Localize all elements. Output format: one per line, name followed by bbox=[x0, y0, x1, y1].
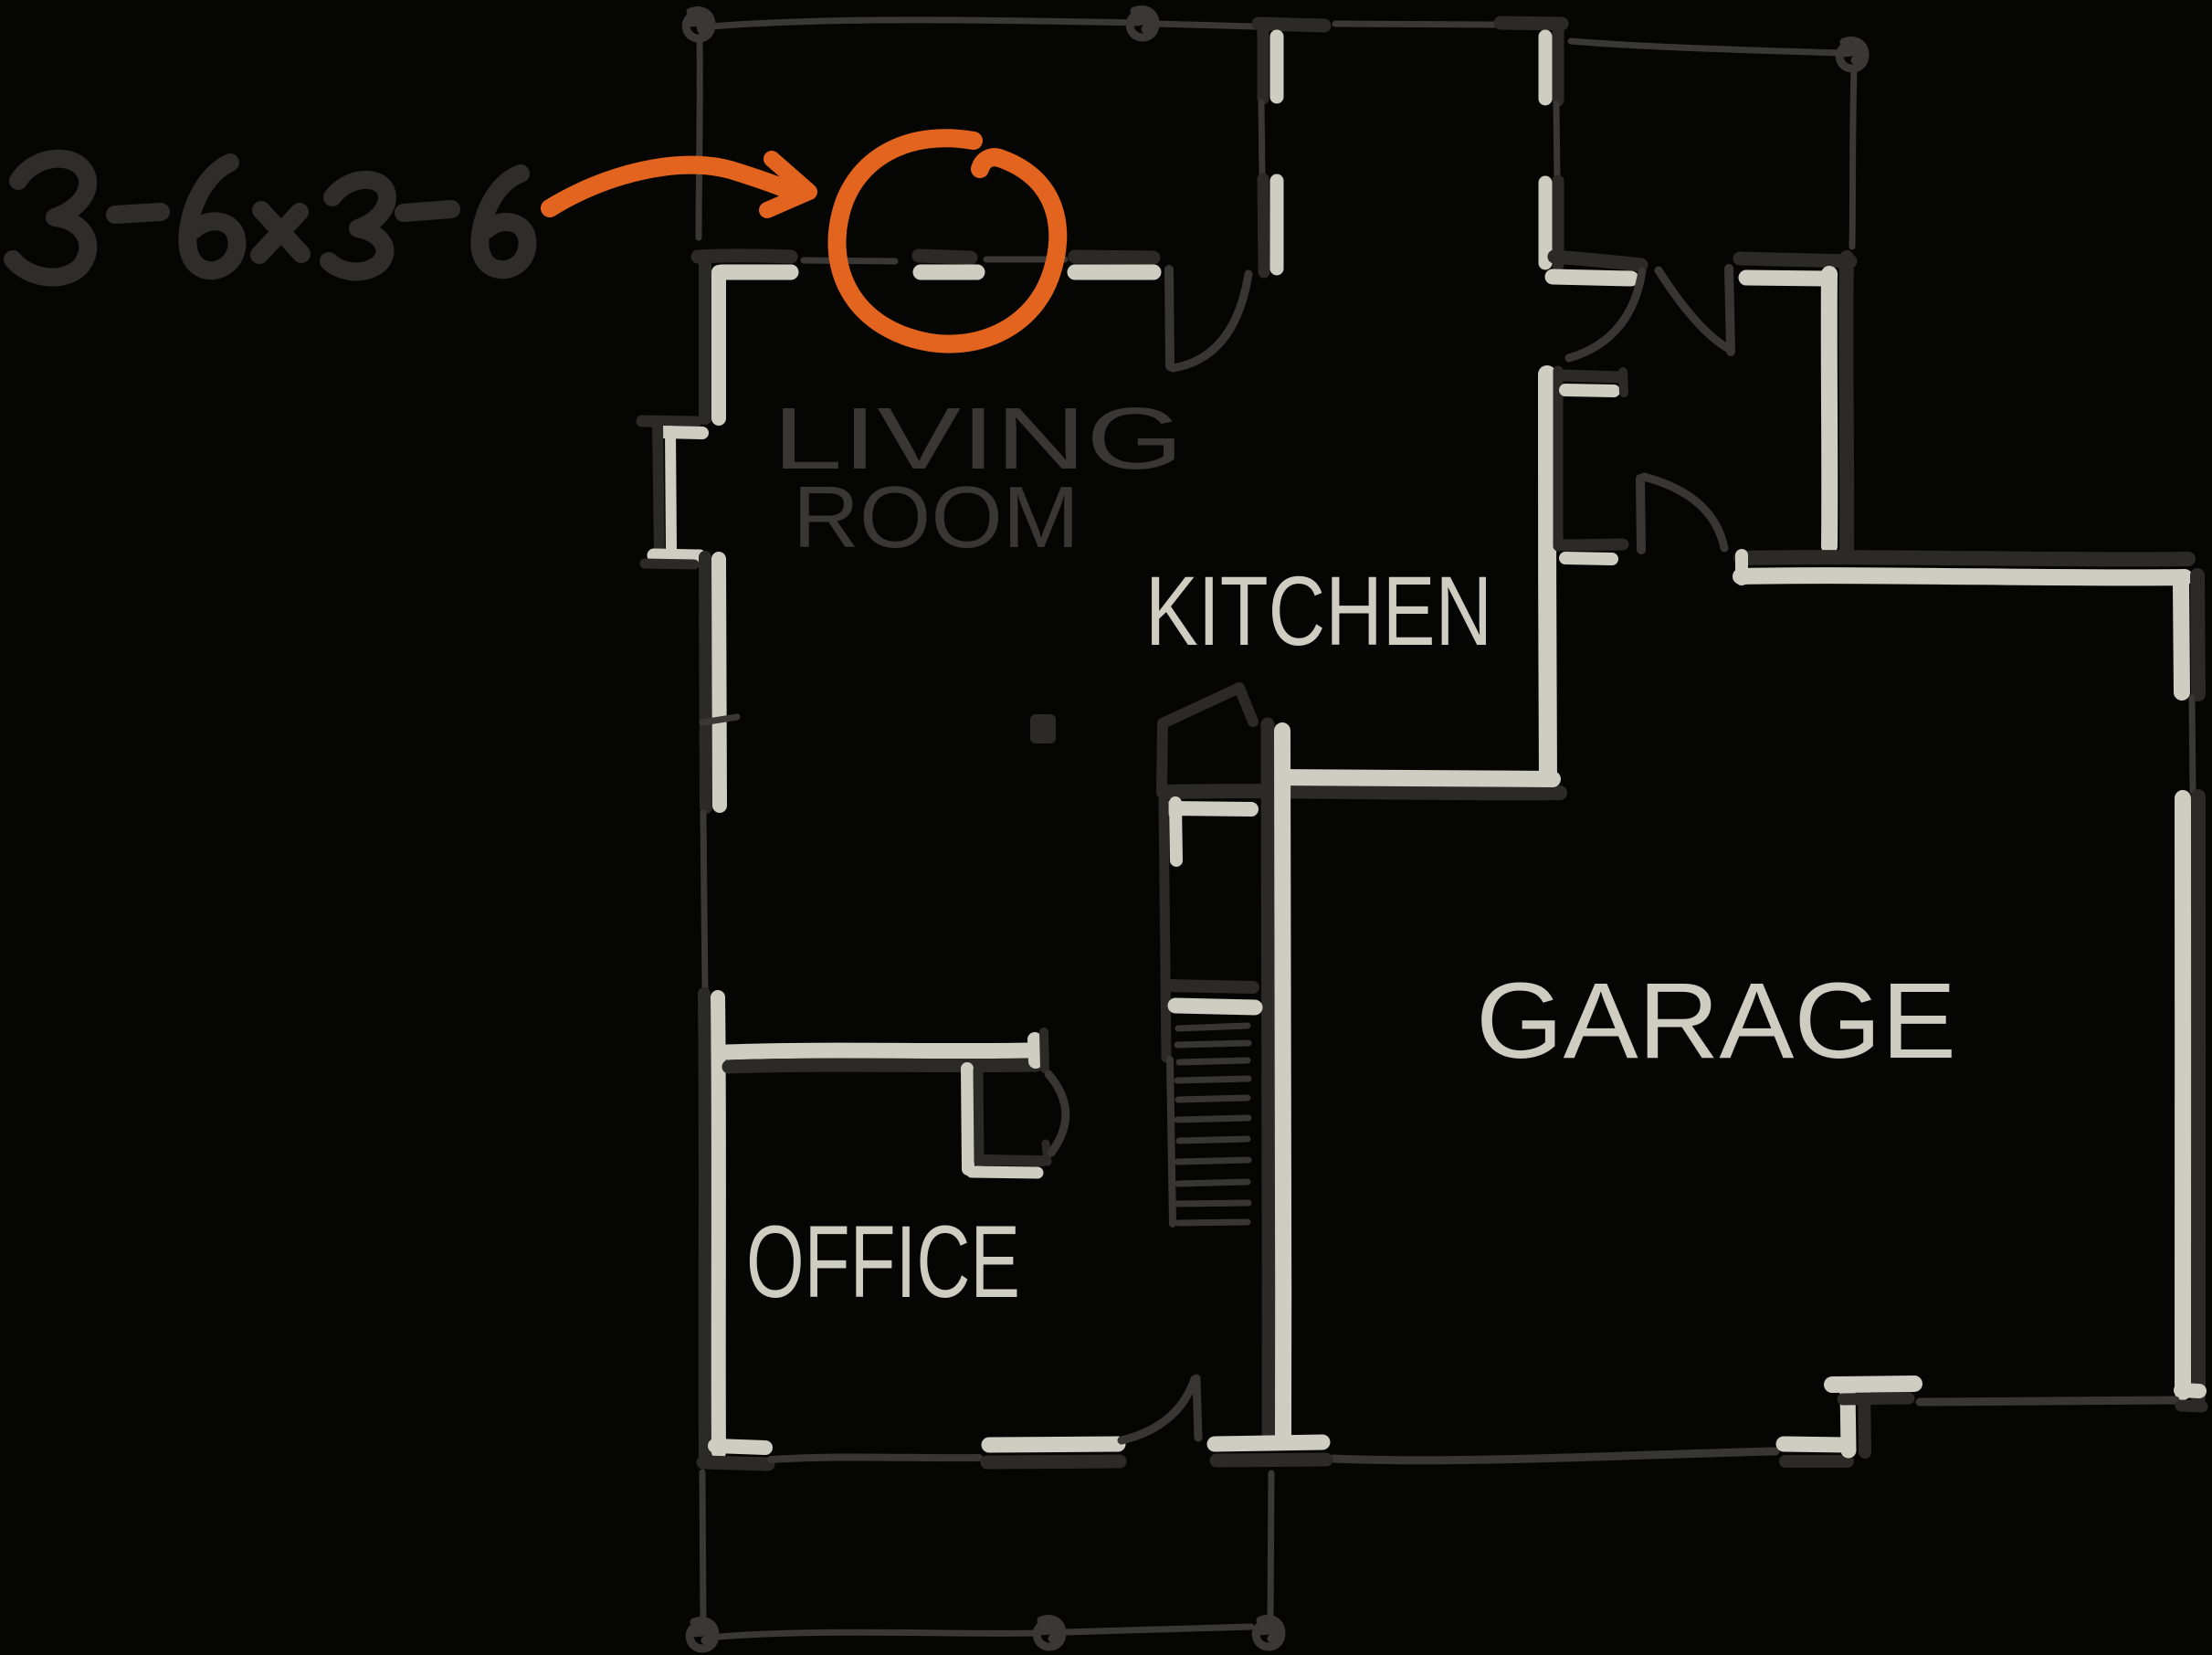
svg-text:OFFICE: OFFICE bbox=[746, 1205, 1020, 1319]
svg-text:KITCHEN: KITCHEN bbox=[1145, 555, 1492, 666]
svg-text:ROOM: ROOM bbox=[793, 469, 1080, 566]
svg-text:GARAGE: GARAGE bbox=[1476, 961, 1956, 1081]
